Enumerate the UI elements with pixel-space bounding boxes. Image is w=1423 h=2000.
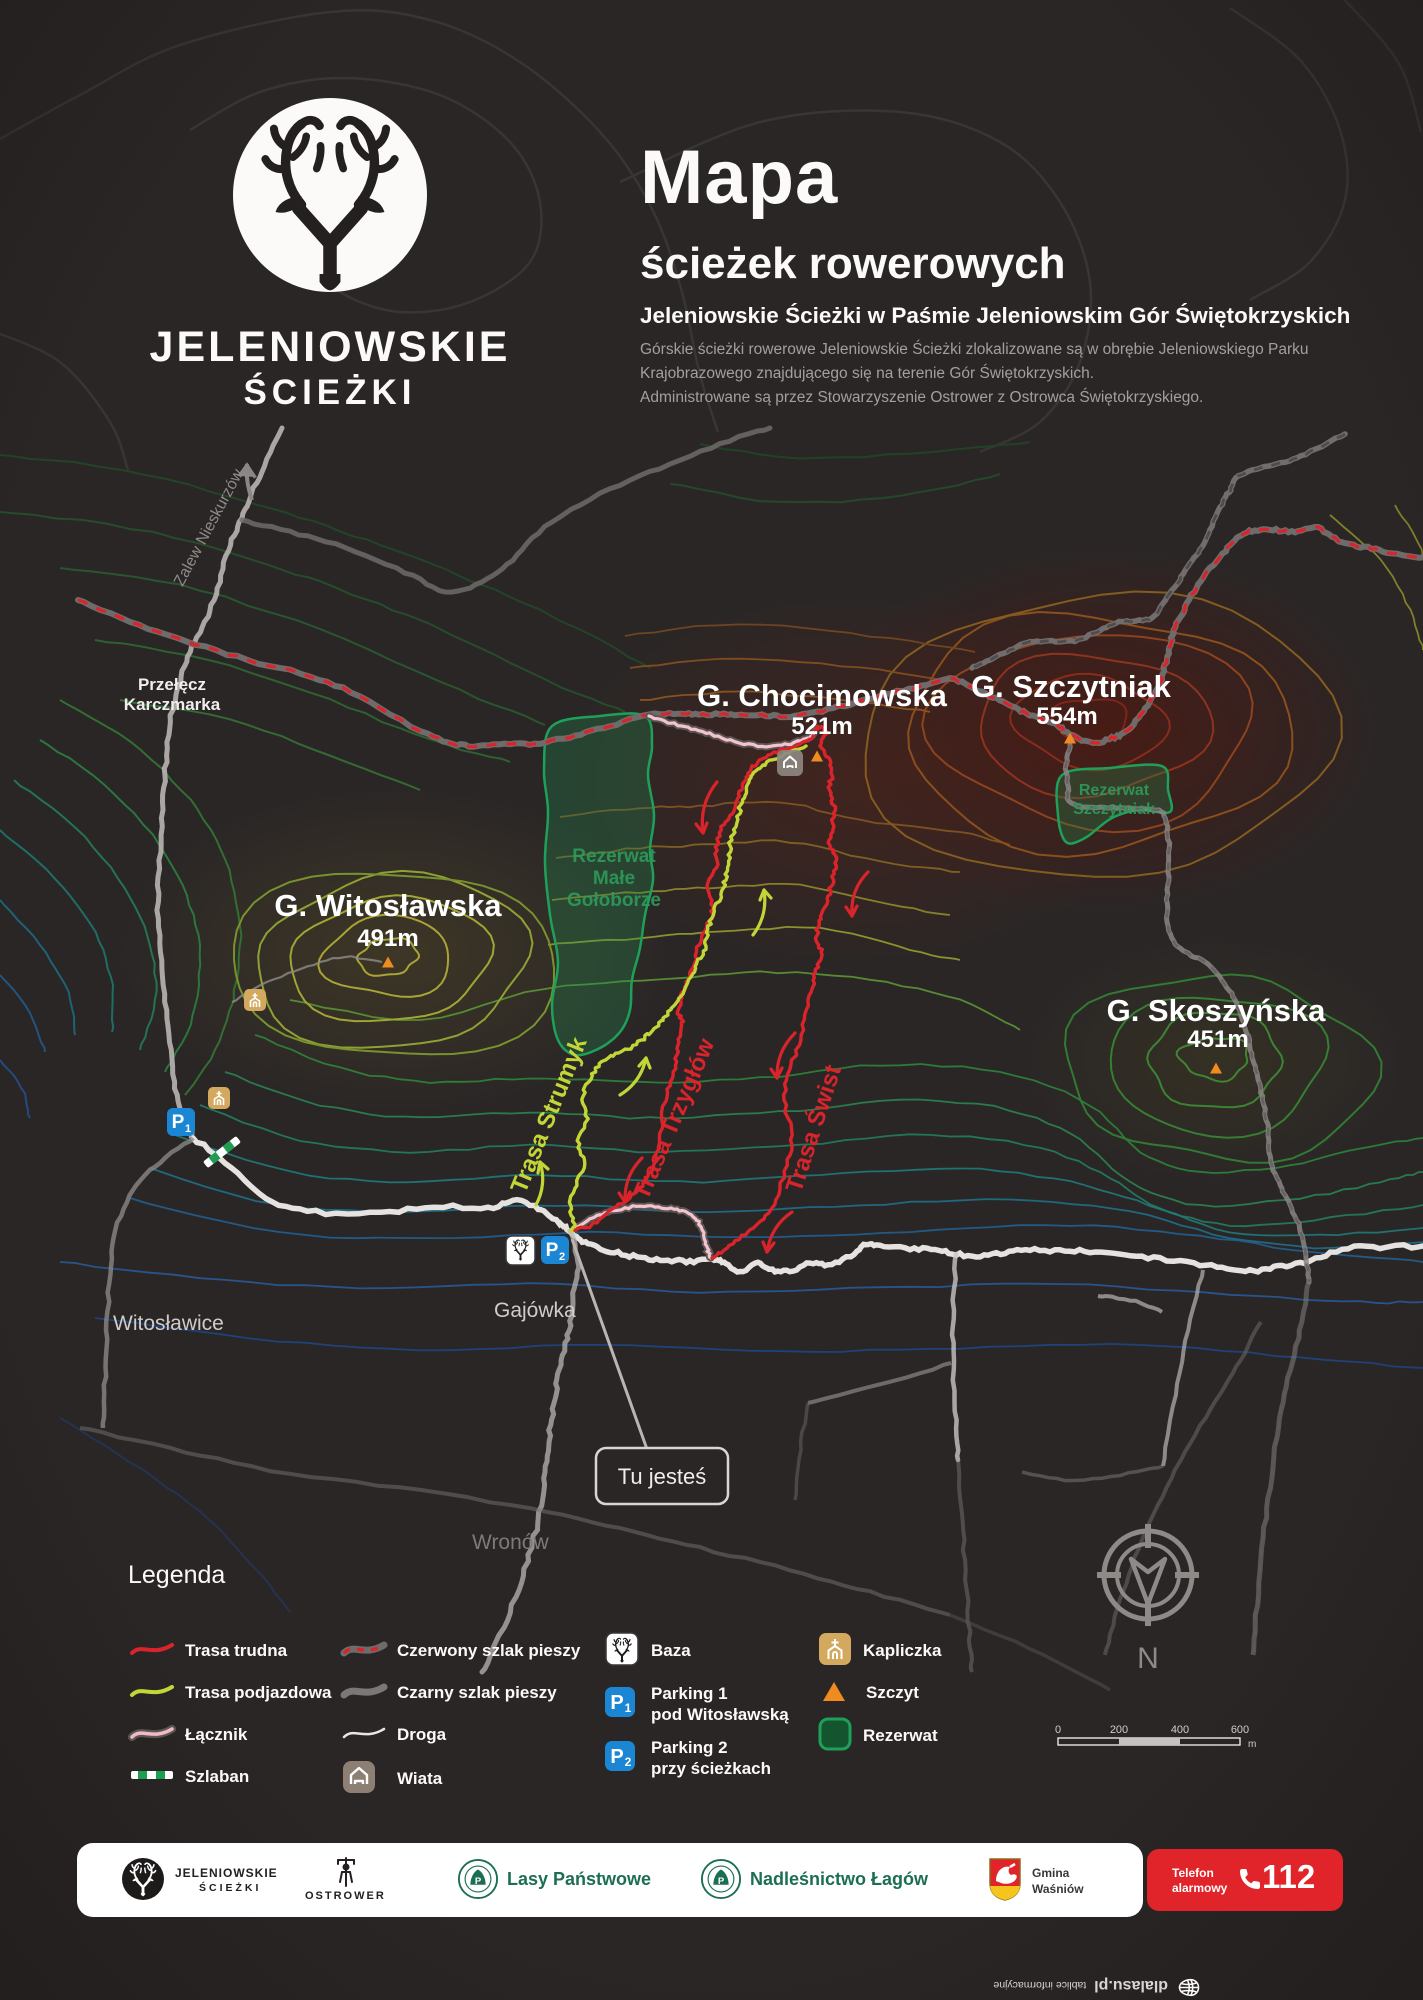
svg-text:P: P (475, 1876, 482, 1887)
svg-text:Rezerwat: Rezerwat (1079, 782, 1150, 799)
svg-text:2: 2 (625, 1755, 632, 1769)
svg-text:0: 0 (1055, 1724, 1061, 1736)
svg-text:G. Chocimowska: G. Chocimowska (697, 678, 948, 713)
svg-text:N: N (1137, 1642, 1159, 1675)
svg-text:200: 200 (1110, 1724, 1128, 1736)
svg-text:G. Szczytniak: G. Szczytniak (971, 669, 1172, 704)
svg-text:P: P (718, 1876, 725, 1887)
svg-text:G. Witosławska: G. Witosławska (274, 888, 502, 923)
svg-text:m: m (1248, 1739, 1256, 1750)
svg-text:600: 600 (1231, 1724, 1249, 1736)
svg-text:Karczmarka: Karczmarka (124, 695, 221, 714)
svg-text:Gajówka: Gajówka (494, 1299, 576, 1322)
svg-text:Małe: Małe (593, 868, 635, 889)
svg-text:Wronów: Wronów (472, 1531, 549, 1554)
svg-text:Szczytniak: Szczytniak (1073, 801, 1155, 818)
svg-text:Rezerwat: Rezerwat (572, 846, 656, 867)
svg-text:451m: 451m (1187, 1026, 1248, 1053)
svg-text:Przełęcz: Przełęcz (138, 675, 206, 694)
svg-text:521m: 521m (791, 713, 852, 740)
svg-text:554m: 554m (1036, 703, 1097, 730)
svg-text:P: P (610, 1746, 623, 1768)
svg-text:Witosławice: Witosławice (113, 1312, 224, 1335)
svg-text:ŚCIEŻKI: ŚCIEŻKI (243, 372, 416, 412)
svg-text:P: P (610, 1692, 623, 1714)
svg-text:Gołoborze: Gołoborze (567, 890, 661, 911)
svg-text:1: 1 (625, 1701, 632, 1715)
svg-text:P: P (546, 1240, 559, 1261)
svg-text:G. Skoszyńska: G. Skoszyńska (1107, 993, 1327, 1028)
svg-text:JELENIOWSKIE: JELENIOWSKIE (150, 323, 511, 371)
svg-text:Tu jesteś: Tu jesteś (618, 1464, 706, 1489)
svg-text:400: 400 (1171, 1724, 1189, 1736)
svg-text:491m: 491m (357, 925, 418, 952)
svg-text:2: 2 (559, 1251, 565, 1263)
svg-text:P: P (172, 1112, 185, 1133)
svg-text:1: 1 (185, 1123, 191, 1135)
